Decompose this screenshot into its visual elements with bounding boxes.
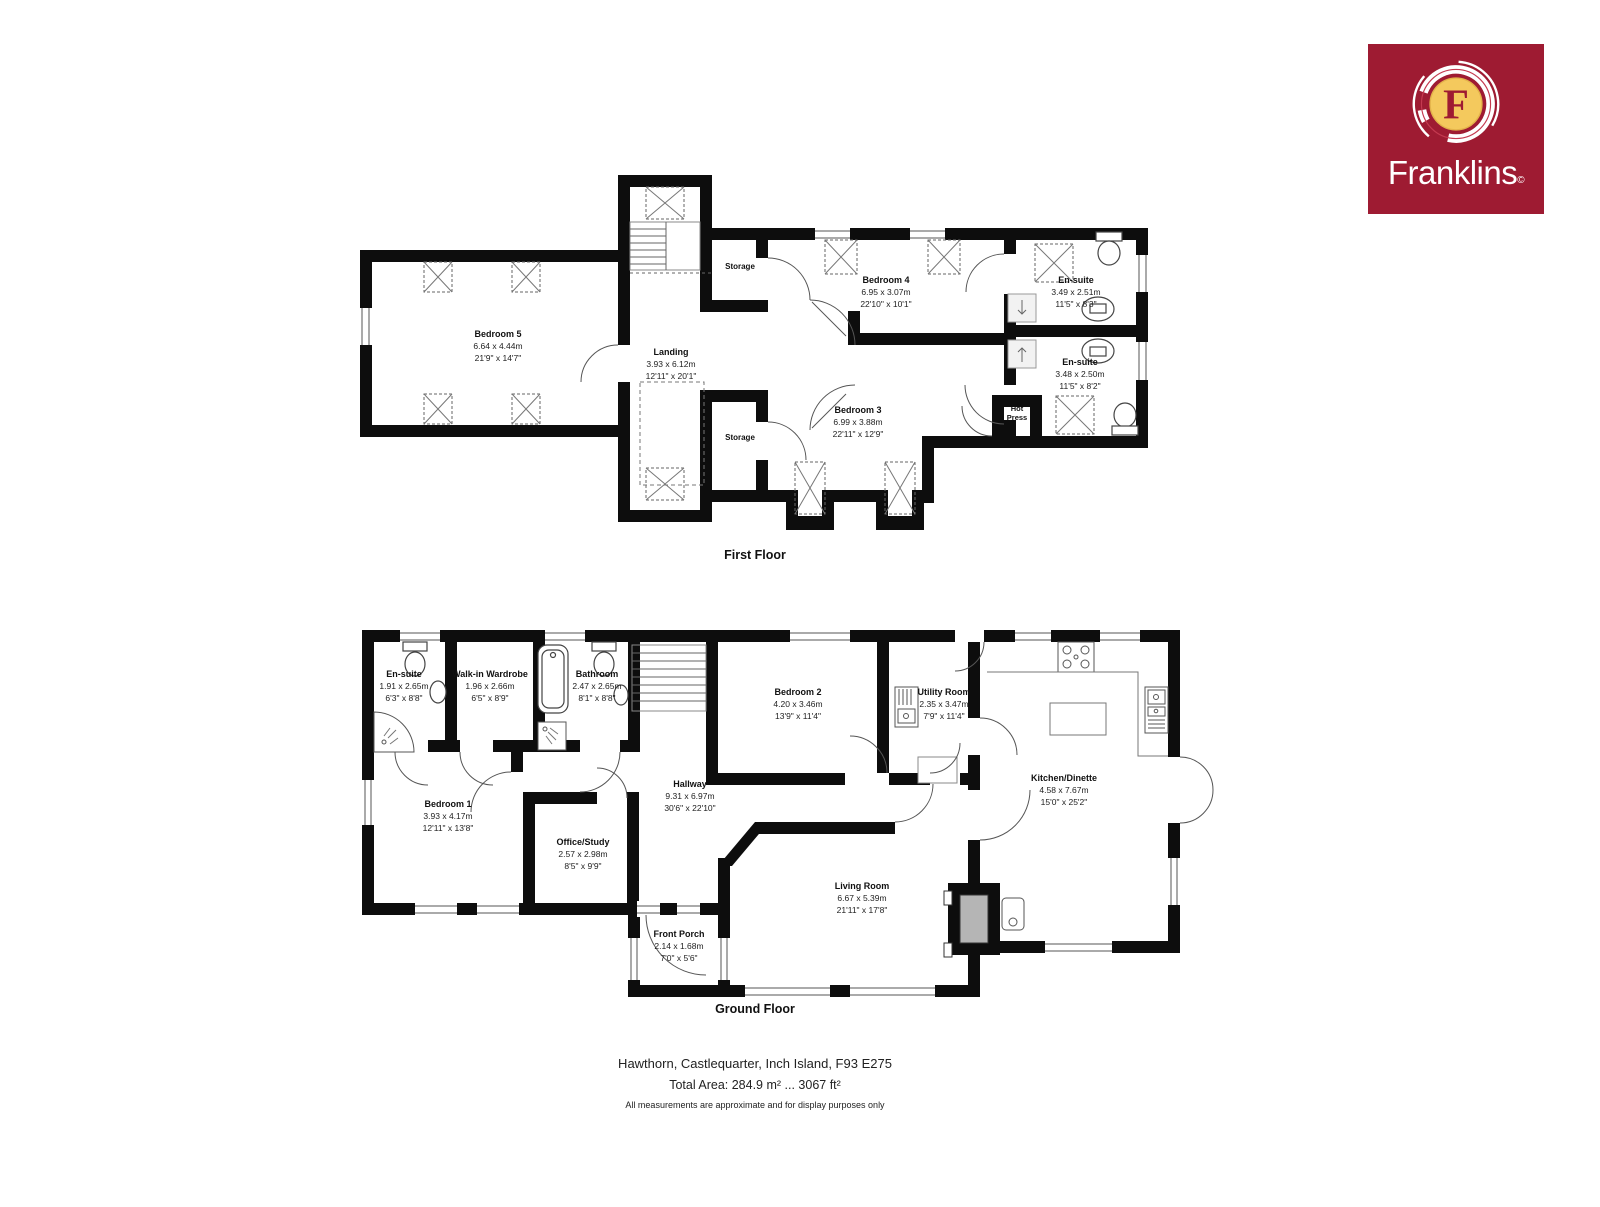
registered-mark: © <box>1517 175 1524 186</box>
room-label-bedroom-3: Bedroom 3 6.99 x 3.88m 22'11" x 12'9" <box>833 404 884 440</box>
room-label-landing: Landing 3.93 x 6.12m 12'11" x 20'1" <box>646 346 697 382</box>
room-label-bathroom: Bathroom 2.47 x 2.65m 8'1" x 8'8" <box>572 668 621 704</box>
hob-icon <box>1058 642 1094 672</box>
total-area: Total Area: 284.9 m² ... 3067 ft² <box>669 1078 841 1092</box>
room-label-ensuite-gf: En-suite 1.91 x 2.65m 6'3" x 8'8" <box>379 668 428 704</box>
room-label-storage-bottom: Storage <box>725 432 755 444</box>
first-floor-title: First Floor <box>724 548 786 562</box>
first-floor-door-arcs <box>581 254 1004 460</box>
property-address: Hawthorn, Castlequarter, Inch Island, F9… <box>618 1056 892 1071</box>
room-label-kitchen-dinette: Kitchen/Dinette 4.58 x 7.67m 15'0" x 25'… <box>1031 772 1097 808</box>
room-label-bedroom-4: Bedroom 4 6.95 x 3.07m 22'10" x 10'1" <box>860 274 911 310</box>
closet-outline <box>918 757 957 783</box>
kitchen-island-outline <box>1050 703 1106 735</box>
floorplan-page: Bedroom 5 6.64 x 4.44m 21'9" x 14'7" Lan… <box>0 0 1600 1207</box>
corner-shower-icon <box>374 712 414 752</box>
toilet-icon <box>1096 232 1122 265</box>
stairs-icon <box>630 222 712 273</box>
room-label-ensuite-1: En-suite 3.49 x 2.51m 11'5" x 8'3" <box>1051 274 1100 310</box>
landing-void-outline <box>640 382 704 485</box>
room-label-bedroom-5: Bedroom 5 6.64 x 4.44m 21'9" x 14'7" <box>473 328 522 364</box>
room-label-bedroom-1: Bedroom 1 3.93 x 4.17m 12'11" x 13'8" <box>423 798 474 834</box>
room-label-bedroom-2: Bedroom 2 4.20 x 3.46m 13'9" x 11'4" <box>773 686 822 722</box>
room-label-office-study: Office/Study 2.57 x 2.98m 8'5" x 9'9" <box>556 836 609 872</box>
franklins-logo-icon: F <box>1408 56 1504 152</box>
room-label-hallway: Hallway 9.31 x 6.97m 30'6" x 22'10" <box>664 778 715 814</box>
bathtub-icon <box>538 645 568 713</box>
room-label-utility-room: Utility Room 2.35 x 3.47m 7'9" x 11'4" <box>918 686 971 722</box>
franklins-logo: F Franklins© <box>1368 44 1544 214</box>
shower-tray-icon <box>538 722 566 750</box>
kitchen-sink-icon <box>1145 687 1168 733</box>
room-label-walk-in-wardrobe: Walk-in Wardrobe 1.96 x 2.66m 6'5" x 8'9… <box>452 668 528 704</box>
franklins-wordmark: Franklins© <box>1388 154 1524 192</box>
room-label-hot-press: Hot Press <box>1000 404 1034 422</box>
room-label-front-porch: Front Porch 2.14 x 1.68m 7'0" x 5'6" <box>654 928 705 964</box>
ground-floor-title: Ground Floor <box>715 1002 795 1016</box>
utility-sink-icon <box>895 687 918 727</box>
sink-icon <box>430 681 446 703</box>
stove-icon <box>1002 898 1024 930</box>
room-label-ensuite-2: En-suite 3.48 x 2.50m 11'5" x 8'2" <box>1055 356 1104 392</box>
toilet-icon <box>1112 403 1138 435</box>
room-label-living-room: Living Room 6.67 x 5.39m 21'11" x 17'8" <box>835 880 890 916</box>
stairs-icon <box>632 645 706 711</box>
disclaimer: All measurements are approximate and for… <box>625 1100 884 1110</box>
svg-text:F: F <box>1443 81 1469 128</box>
room-label-storage-top: Storage <box>725 261 755 273</box>
